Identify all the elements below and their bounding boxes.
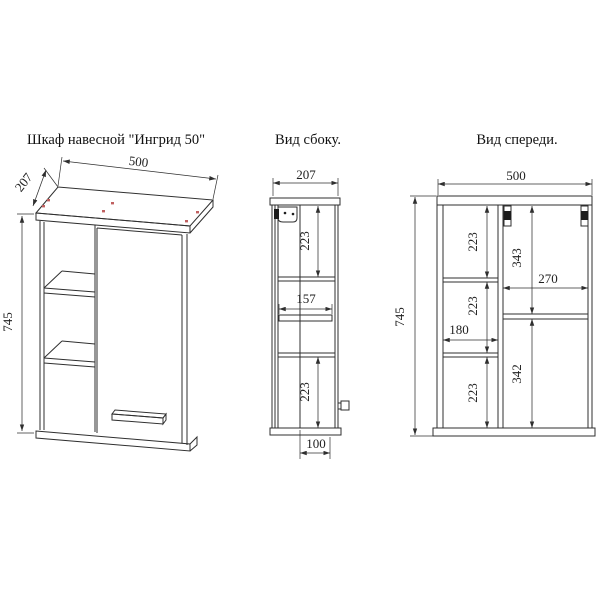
front-dim-door-bottom: 342	[509, 319, 532, 428]
front-dim-left-middle: 223	[465, 282, 487, 353]
iso-dim-width-label: 500	[128, 153, 149, 170]
iso-bottom-right-edge	[190, 437, 197, 451]
side-bottom-panel	[270, 428, 341, 435]
front-dim-door-top-label: 343	[509, 248, 524, 268]
iso-shelf-lower	[44, 341, 95, 367]
side-mounting-bracket	[274, 207, 297, 222]
side-top-panel	[270, 198, 340, 205]
front-view-title: Вид спереди.	[476, 132, 557, 148]
front-dim-door-bottom-label: 342	[509, 364, 524, 384]
side-dim-bottom-section-label: 223	[297, 382, 312, 402]
side-dim-depth: 207	[273, 167, 338, 196]
side-dim-handle-offset: 100	[300, 430, 330, 459]
iso-door	[97, 228, 182, 443]
iso-dim-width: 500	[58, 153, 218, 199]
front-dim-door-opening-width-label: 270	[538, 271, 558, 286]
isometric-view: 500 207 745	[0, 153, 218, 451]
side-dim-shelf-depth-label: 157	[296, 291, 316, 306]
front-hinge-left	[504, 206, 511, 226]
side-dim-depth-label: 207	[296, 167, 316, 182]
front-dim-left-bottom: 223	[465, 357, 487, 428]
front-dim-left-top: 223	[465, 206, 487, 278]
side-view: 207 223 157 223 100	[270, 167, 349, 459]
front-dim-width: 500	[438, 168, 592, 195]
side-shelf-upper	[278, 277, 335, 281]
side-dim-shelf-depth: 157	[279, 291, 332, 314]
front-dim-door-top: 343	[509, 206, 532, 314]
iso-fastener-marks	[42, 199, 199, 222]
technical-drawing-page: Шкаф навесной "Ингрид 50" Вид сбоку. Вид…	[0, 0, 600, 600]
front-door-middle-shelf	[503, 314, 588, 319]
iso-top-right-edge	[190, 200, 213, 233]
front-dim-shelf-width: 180	[443, 322, 498, 340]
iso-top-front-edge	[36, 213, 190, 233]
front-bottom-panel	[433, 428, 595, 436]
front-dim-left-middle-label: 223	[465, 296, 480, 316]
iso-shelf-upper	[44, 271, 95, 297]
side-view-title: Вид сбоку.	[275, 132, 341, 148]
front-dim-shelf-width-label: 180	[449, 322, 469, 337]
iso-door-handle	[112, 410, 166, 424]
front-dim-left-bottom-label: 223	[465, 383, 480, 403]
front-body-outline	[437, 196, 592, 428]
front-dim-height-label: 745	[392, 307, 407, 327]
front-shelf-lower	[443, 353, 498, 357]
iso-dim-depth-label: 207	[12, 170, 36, 195]
front-view: 500 745 223 223 180 223 343	[392, 168, 595, 436]
iso-dim-height-label: 745	[0, 312, 15, 332]
iso-dim-depth: 207	[12, 168, 58, 206]
front-hinge-right	[581, 206, 588, 226]
front-dim-width-label: 500	[506, 168, 526, 183]
side-dim-top-section-label: 223	[297, 231, 312, 251]
iso-bottom-front-edge	[36, 431, 190, 451]
front-dim-left-top-label: 223	[465, 232, 480, 252]
front-shelf-upper	[443, 278, 498, 282]
side-shelf-lower	[278, 353, 335, 357]
iso-dim-height: 745	[0, 214, 34, 433]
cabinet-drawing-canvas: Шкаф навесной "Ингрид 50" Вид сбоку. Вид…	[0, 0, 600, 600]
side-dim-handle-offset-label: 100	[306, 436, 326, 451]
side-door-handle	[338, 401, 349, 410]
side-middle-shelf	[279, 315, 332, 321]
front-dim-height: 745	[392, 196, 436, 436]
isometric-view-title: Шкаф навесной "Ингрид 50"	[27, 132, 205, 148]
front-dim-door-opening-width: 270	[503, 271, 588, 288]
